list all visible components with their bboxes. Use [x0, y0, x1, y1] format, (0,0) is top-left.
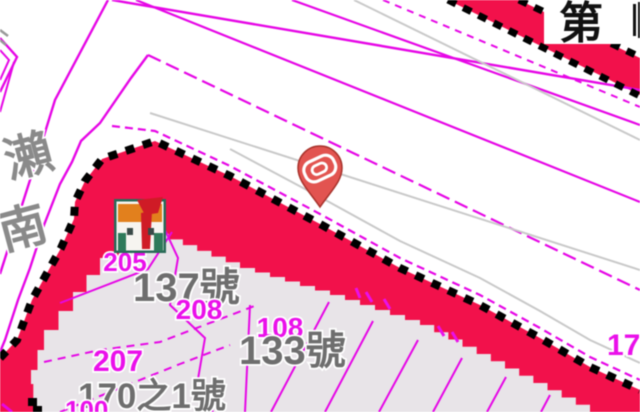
svg-text:133號: 133號	[239, 329, 346, 373]
svg-text:100: 100	[65, 395, 108, 412]
svg-text:第: 第	[559, 0, 603, 48]
svg-text:208: 208	[176, 294, 223, 325]
svg-text:17: 17	[607, 329, 640, 362]
svg-text:207: 207	[93, 345, 143, 378]
